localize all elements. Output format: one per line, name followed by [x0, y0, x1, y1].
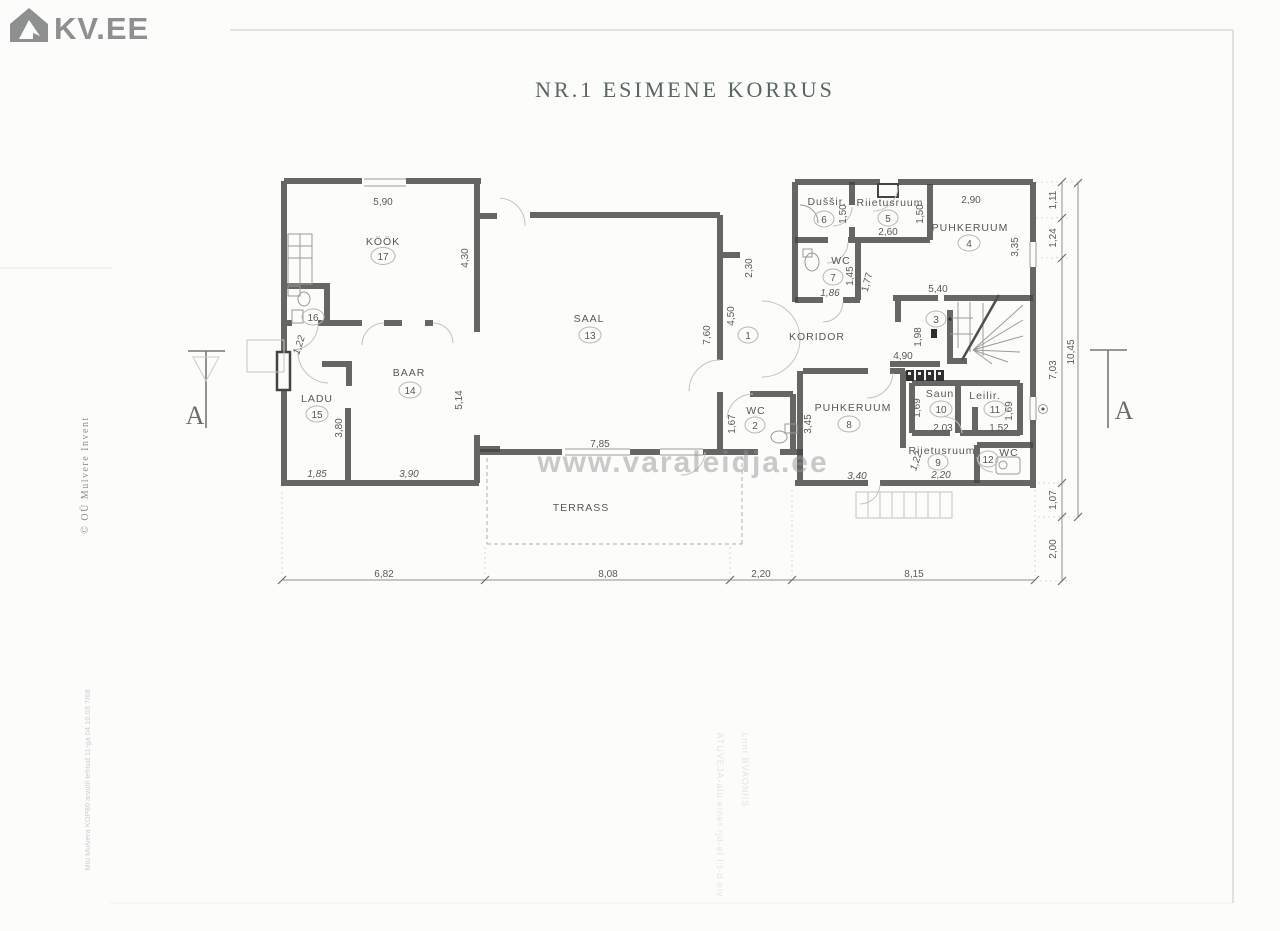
dim-kook-top: 5,90	[373, 197, 393, 208]
room-label-baar: BAAR	[393, 367, 426, 379]
dim-right-2: 1,24	[1048, 228, 1059, 248]
dim-ladu-bottom: 1,85	[307, 469, 327, 480]
dim-stair-w: 4,90	[893, 351, 913, 362]
dim-stair-h: 1,98	[913, 327, 924, 347]
room-label-wc12: WC	[999, 447, 1019, 459]
scan-artifact-left: Mtü Mulvera KOP80 arvutil tehtud 11-ga 0…	[83, 689, 92, 870]
dim-right-5: 2,00	[1048, 539, 1059, 559]
dim-bottom-4: 8,15	[904, 569, 924, 580]
dim-wc7-bottom: 1,86	[820, 288, 840, 299]
kv-logo: KV.EE	[10, 8, 149, 46]
logo-text: KV.EE	[54, 11, 149, 46]
dim-p4-right: 3,35	[1010, 237, 1021, 257]
dim-baar-right: 5,14	[454, 390, 465, 410]
dim-right-3: 7,03	[1048, 360, 1059, 380]
dim-leilir-bottom: 1,52	[989, 423, 1009, 434]
dim-p4-top: 2,90	[961, 195, 981, 206]
room-number-5: 5	[885, 214, 891, 225]
scan-artifact-right-2: Lnnt BVAONIIS	[740, 733, 750, 808]
dim-p4-bottom: 5,40	[928, 284, 948, 295]
floor-plan-canvas: KV.EE NR.1 ESIMENE KORRUS	[0, 0, 1280, 931]
dim-right-1: 1,11	[1048, 190, 1059, 209]
dim-r5-right: 1,50	[915, 204, 926, 224]
dim-saal-ne: 2,30	[744, 258, 755, 278]
chimney-block	[878, 184, 898, 197]
room-number-1: 1	[745, 331, 751, 342]
dim-saal-right-a: 7,60	[702, 325, 713, 345]
room-number-4: 4	[966, 239, 972, 250]
room-label-puhkeruum8: PUHKERUUM	[815, 402, 892, 414]
scanned-floor-plan-page: KV.EE NR.1 ESIMENE KORRUS	[0, 0, 1280, 931]
room-label-puhkeruum4: PUHKERUUM	[932, 222, 1009, 234]
dim-r9-bottom: 2,20	[930, 470, 951, 481]
dim-kook-right: 4,30	[460, 248, 471, 268]
dim-r5-bottom: 2,60	[878, 227, 898, 238]
dim-saun-bottom: 2,03	[933, 423, 953, 434]
room-number-10: 10	[935, 405, 947, 416]
dim-p8-left: 3,45	[803, 414, 814, 434]
room-number-13: 13	[584, 331, 596, 342]
room-number-7: 7	[830, 273, 836, 284]
room-label-saun: Saun	[926, 388, 955, 400]
dim-right-total: 10,45	[1066, 339, 1077, 364]
dim-partition: 3,80	[334, 418, 345, 438]
room-label-kook: KÖÖK	[366, 236, 400, 248]
watermark: www.varaleidja.ee	[536, 446, 828, 479]
room-number-14: 14	[404, 386, 416, 397]
room-number-12: 12	[982, 455, 994, 466]
dim-bottom-3: 2,20	[751, 569, 771, 580]
dim-right-4: 1,07	[1048, 490, 1059, 510]
room-label-terrass: TERRASS	[553, 502, 610, 514]
dim-saal-right-b: 4,50	[726, 306, 737, 326]
room-number-2: 2	[752, 421, 758, 432]
dim-bottom-2: 8,08	[598, 569, 618, 580]
dim-passage: 1,77	[860, 271, 876, 293]
room-label-wc2: WC	[746, 405, 766, 417]
section-marker-a-right: A	[1115, 396, 1134, 425]
room-label-saal: SAAL	[574, 313, 605, 325]
side-notes: © OÜ Mulvere Invent Mtü Mulvera KOP80 ar…	[79, 416, 750, 897]
room-number-11: 11	[990, 405, 1001, 416]
page-title: NR.1 ESIMENE KORRUS	[535, 77, 835, 102]
dim-leilir-right: 1,69	[1004, 401, 1015, 421]
copyright-note: © OÜ Mulvere Invent	[79, 416, 91, 533]
section-marker-a-left: A	[186, 401, 205, 430]
dim-saun-left: 1,69	[912, 398, 923, 418]
room-number-6: 6	[821, 215, 827, 226]
staircase	[931, 295, 1023, 364]
room-number-17: 17	[377, 252, 389, 263]
room-number-3: 3	[933, 315, 939, 326]
room-number-8: 8	[846, 420, 852, 431]
room-number-16: 16	[307, 313, 319, 324]
lockers	[906, 370, 944, 381]
room-label-ladu: LADU	[301, 393, 333, 405]
room-number-9: 9	[935, 458, 941, 469]
dim-p8-bottom: 3,40	[847, 471, 867, 482]
room-label-leilir: Leilir.	[969, 390, 1001, 402]
room-label-koridor: KORIDOR	[789, 331, 845, 343]
scan-artifact-right-1: ATUVEJA-alu einet rjd-el l:t-d oiv	[715, 733, 725, 898]
dim-kook-left: 1,22	[291, 334, 308, 356]
dim-dusir: 1,50	[838, 204, 849, 224]
room-label-riietusruum5: Riietusruum	[856, 197, 923, 209]
room-label-wc7: WC	[831, 255, 851, 267]
dim-bottom-1: 6,82	[374, 569, 394, 580]
dim-wc7-h: 1,45	[845, 266, 856, 286]
dim-baar-bottom: 3,90	[399, 469, 419, 480]
dim-wc2: 1,67	[727, 414, 738, 434]
room-number-15: 15	[311, 410, 323, 421]
